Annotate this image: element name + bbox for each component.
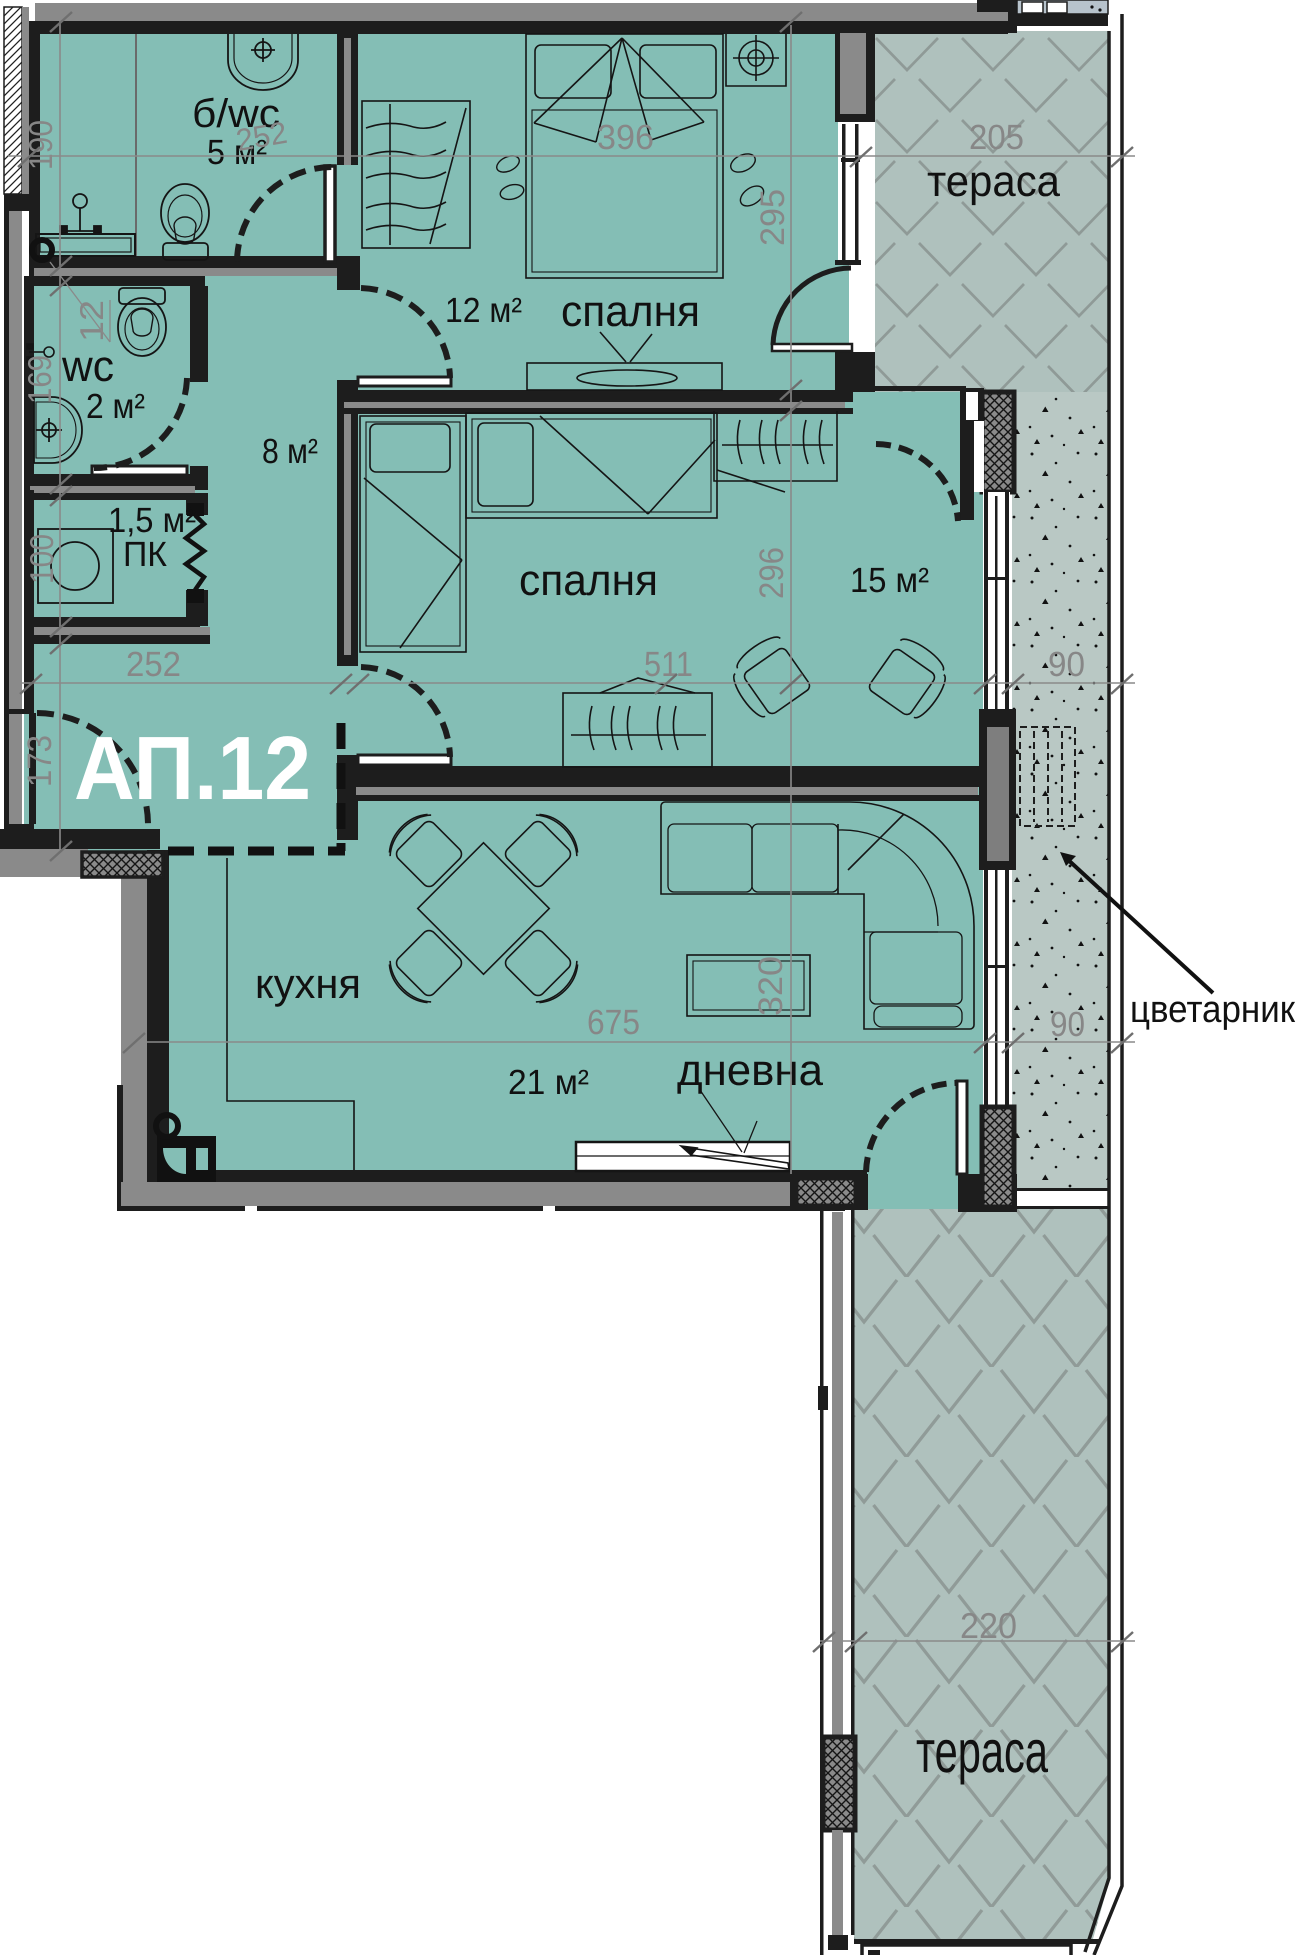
- svg-text:спалня: спалня: [519, 556, 658, 605]
- svg-text:100: 100: [23, 534, 60, 584]
- svg-text:тераса: тераса: [927, 157, 1060, 206]
- svg-text:тераса: тераса: [916, 1718, 1048, 1785]
- svg-text:12 м²: 12 м²: [445, 291, 522, 330]
- svg-text:675: 675: [587, 1003, 640, 1042]
- svg-text:173: 173: [21, 735, 59, 787]
- svg-text:кухня: кухня: [255, 960, 361, 1007]
- svg-text:15 м²: 15 м²: [850, 561, 929, 600]
- svg-text:8 м²: 8 м²: [262, 432, 318, 471]
- svg-text:296: 296: [753, 547, 791, 599]
- svg-text:цветарник: цветарник: [1130, 989, 1295, 1031]
- svg-text:511: 511: [644, 645, 693, 684]
- svg-text:90: 90: [1048, 645, 1085, 684]
- svg-text:дневна: дневна: [677, 1046, 824, 1095]
- svg-text:295: 295: [754, 189, 792, 246]
- svg-text:ПК: ПК: [123, 535, 168, 574]
- svg-text:169: 169: [21, 355, 58, 404]
- svg-text:21 м²: 21 м²: [508, 1063, 589, 1102]
- svg-text:220: 220: [960, 1605, 1017, 1646]
- svg-text:90: 90: [1050, 1005, 1085, 1044]
- svg-text:wc: wc: [61, 342, 114, 391]
- svg-text:320: 320: [752, 956, 790, 1016]
- svg-text:АП.12: АП.12: [74, 719, 311, 819]
- svg-text:396: 396: [597, 118, 654, 157]
- svg-text:205: 205: [969, 118, 1024, 157]
- svg-text:252: 252: [126, 645, 181, 684]
- svg-text:12: 12: [73, 300, 110, 342]
- svg-text:спалня: спалня: [561, 287, 700, 336]
- svg-text:190: 190: [22, 120, 59, 170]
- svg-text:2 м²: 2 м²: [86, 387, 145, 426]
